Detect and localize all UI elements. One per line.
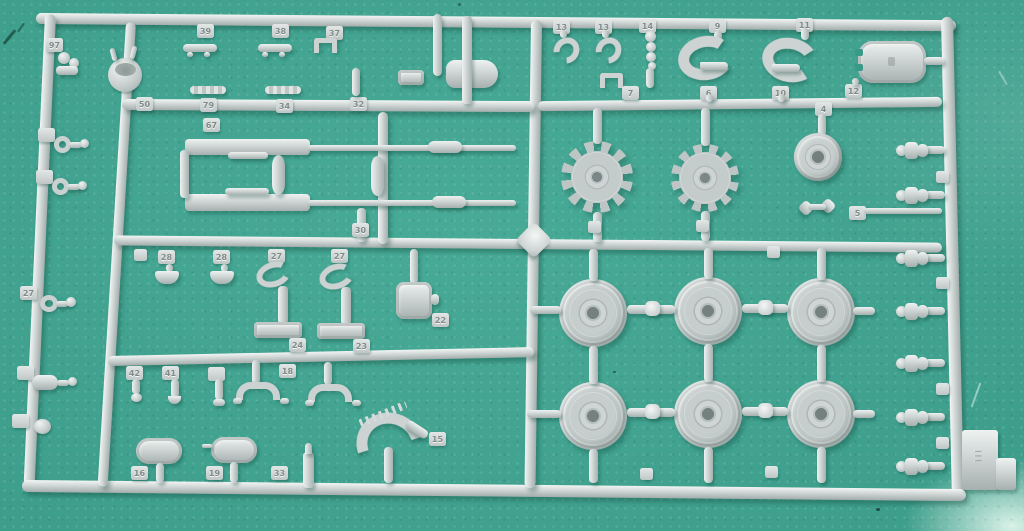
pill-ball (68, 377, 77, 386)
gate-pad (645, 301, 660, 316)
small-figure-base (56, 66, 78, 75)
gate-pad (758, 300, 773, 315)
part-number-tab-39: 39 (197, 24, 214, 38)
sprue-stub (852, 78, 859, 85)
sprue-connector (180, 150, 189, 198)
part-number-tab-30: 30 (352, 223, 369, 237)
gate-block-mark: III (972, 450, 982, 464)
drive-sprocket (671, 144, 739, 212)
road-wheel (674, 277, 742, 345)
shovel-blade (446, 60, 498, 88)
road-wheel (559, 382, 627, 450)
runner-upper-left (122, 99, 534, 112)
u-clamp-part (308, 384, 352, 402)
periscope-foot (317, 323, 365, 339)
pin-part (132, 379, 140, 394)
u-clamp-foot (280, 398, 289, 404)
u-clamp-foot (233, 398, 242, 404)
wheel-connector (853, 410, 875, 418)
part-number-tab-28: 28 (213, 250, 230, 264)
sprue-stub (924, 57, 944, 65)
pin-foot (213, 399, 225, 406)
part-number-tab-79: 79 (200, 98, 217, 112)
hatch-part (396, 282, 432, 319)
bucket-opening (115, 63, 136, 76)
sprue-stub (925, 462, 945, 470)
pin-ball (131, 393, 142, 402)
sprue-stub (324, 362, 332, 385)
wheel-connector (527, 410, 561, 418)
part-number-tab-19: 19 (206, 466, 223, 480)
part-number-tab-28: 28 (158, 250, 175, 264)
u-clamp-part (236, 382, 280, 400)
sprue-stub (704, 248, 713, 279)
part-number-tab-16: 16 (131, 466, 148, 480)
part-number-tab-50: 50 (136, 97, 153, 111)
part-number-tab-42: 42 (126, 366, 143, 380)
pin-part (352, 68, 360, 96)
sprue-stub (817, 248, 826, 280)
plate-notch (855, 64, 863, 71)
periscope-foot (254, 322, 302, 338)
drive-sprocket (561, 141, 633, 213)
u-clamp-foot (352, 400, 361, 406)
shovel-handle (433, 14, 442, 76)
part-number-tab (936, 277, 949, 289)
sprue-stub (925, 413, 945, 421)
part-number-tab (767, 246, 780, 258)
part-number-tab (36, 170, 53, 184)
sprue-stub (589, 449, 598, 483)
road-wheel (787, 278, 855, 346)
periscope-bar (278, 286, 288, 324)
oval-hatch-part (211, 437, 257, 463)
sprue-stub (925, 146, 945, 154)
part-number-tab (17, 366, 34, 380)
bolt-cap-part (917, 252, 928, 265)
mg-barrel-detail (228, 152, 268, 159)
wheel-connector (530, 306, 561, 314)
sprue-stub (925, 254, 945, 262)
mg-barrel-rod (308, 200, 516, 206)
part-number-tab-5: 5 (849, 206, 866, 220)
clamp-foot (204, 52, 210, 57)
sprue-stub (230, 462, 238, 483)
wheel-connector (817, 345, 826, 382)
part-number-tab (936, 383, 949, 395)
pin-part (646, 68, 654, 88)
clamp-part (258, 44, 292, 52)
shell-part (303, 452, 314, 488)
bolt-cap-part (917, 189, 928, 202)
sprue-stub (925, 191, 945, 199)
part-number-tab (765, 466, 778, 478)
bolt-cap-part (917, 305, 928, 318)
oval-pill-part (32, 375, 58, 390)
part-number-tab-18: 18 (279, 364, 296, 378)
part-number-tab (12, 414, 29, 428)
sprue-stub (252, 360, 260, 384)
oval-hatch-part (136, 438, 182, 464)
wheel-connector (853, 307, 875, 315)
clamp-foot (187, 52, 193, 57)
clamp-part (265, 86, 301, 94)
part-number-tab-7: 7 (622, 86, 639, 100)
staple-clamp-part (600, 73, 623, 88)
bead-chain-part (645, 31, 656, 42)
sprue-stub (817, 447, 826, 483)
sprue-stub (156, 463, 164, 483)
sprue-stub (706, 94, 713, 102)
plate-detail (888, 57, 895, 66)
part-number-tab-12: 12 (845, 84, 862, 98)
clamp-foot (279, 52, 285, 57)
bolt-cap-part (917, 144, 928, 157)
clamp-arm (772, 64, 800, 72)
bolt-cap-part (917, 460, 928, 473)
sprue-stub (462, 16, 472, 104)
part-number-tab-27: 27 (331, 249, 348, 263)
part-number-tab (936, 437, 949, 449)
part-number-tab-33: 33 (271, 466, 288, 480)
road-wheel (674, 380, 742, 448)
sprue-stub (925, 307, 945, 315)
mg-barrel-detail (225, 188, 269, 195)
part-number-tab-27: 27 (20, 286, 37, 300)
eyelet-ball (78, 181, 87, 190)
clamp-foot (262, 52, 268, 57)
mg-muzzle (432, 196, 466, 208)
wheel-connector (704, 344, 713, 382)
idler-wheel-hub (794, 133, 842, 181)
periscope-bar (341, 287, 351, 325)
gate-block: III (962, 430, 998, 490)
mg-barrel-body (185, 194, 310, 211)
part-number-tab (38, 128, 55, 142)
part-number-tab-23: 23 (353, 339, 370, 353)
sprue-stub (925, 359, 945, 367)
staple-clamp-part (314, 38, 337, 53)
part-number-tab (640, 468, 653, 480)
hatch-knob (431, 294, 439, 305)
part-number-tab-22: 22 (432, 313, 449, 327)
mat-speck (613, 371, 616, 373)
mg-barrel-rod (308, 145, 516, 151)
wheel-connector (589, 346, 598, 384)
ring-ball (66, 297, 76, 307)
plate-notch (855, 49, 863, 56)
bolt-cap-part (917, 411, 928, 424)
gate-pad (758, 403, 773, 418)
gate-block-step (996, 458, 1016, 490)
part-number-tab-67: 67 (203, 118, 220, 132)
sprue-stub (410, 249, 418, 284)
sprue-stub (384, 447, 393, 483)
sprue-stub (701, 108, 710, 146)
part-number-tab-24: 24 (289, 338, 306, 352)
hatch-handle (202, 444, 212, 448)
part-number-tab-34: 34 (276, 99, 293, 113)
sprue-photo: 39 38 37 97 13 13 14 9 6 11 10 7 12 (0, 0, 1024, 531)
mat-speck (458, 3, 461, 6)
bolt-cap-part (917, 357, 928, 370)
mg-muzzle (428, 141, 462, 153)
road-wheel (559, 279, 627, 347)
sprue-stub (864, 208, 942, 214)
clamp-part (190, 86, 226, 94)
eyelet-ball (80, 139, 89, 148)
part-number-tab-38: 38 (272, 24, 289, 38)
clamp-part (183, 44, 217, 52)
shell-tip (305, 443, 312, 454)
sprue-stub (704, 447, 713, 483)
road-wheel (787, 380, 855, 448)
part-number-tab (588, 221, 601, 233)
part-number-tab-41: 41 (162, 366, 179, 380)
part-number-tab (696, 220, 709, 232)
part-number-tab-97: 97 (46, 38, 63, 52)
part-number-tab (936, 171, 949, 183)
part-number-tab-32: 32 (350, 97, 367, 111)
bead-chain-part (646, 42, 656, 52)
shovel-bracket-part (398, 70, 424, 85)
knob-part (34, 419, 51, 434)
sprue-stub (778, 94, 785, 102)
sprue-stub (801, 28, 809, 40)
clamp-arm (700, 62, 728, 70)
gate-pad (645, 404, 660, 419)
part-number-tab (134, 249, 147, 261)
teardrop-connector (371, 156, 384, 196)
part-number-tab-15: 15 (429, 432, 446, 446)
teardrop-connector (272, 155, 285, 195)
sprue-stub (589, 249, 598, 281)
pin-part (215, 379, 223, 400)
link-bar (808, 204, 826, 210)
bead-chain-part (646, 52, 656, 62)
u-clamp-foot (305, 400, 314, 406)
mat-speck (876, 508, 880, 511)
sprue-stub (593, 108, 602, 144)
